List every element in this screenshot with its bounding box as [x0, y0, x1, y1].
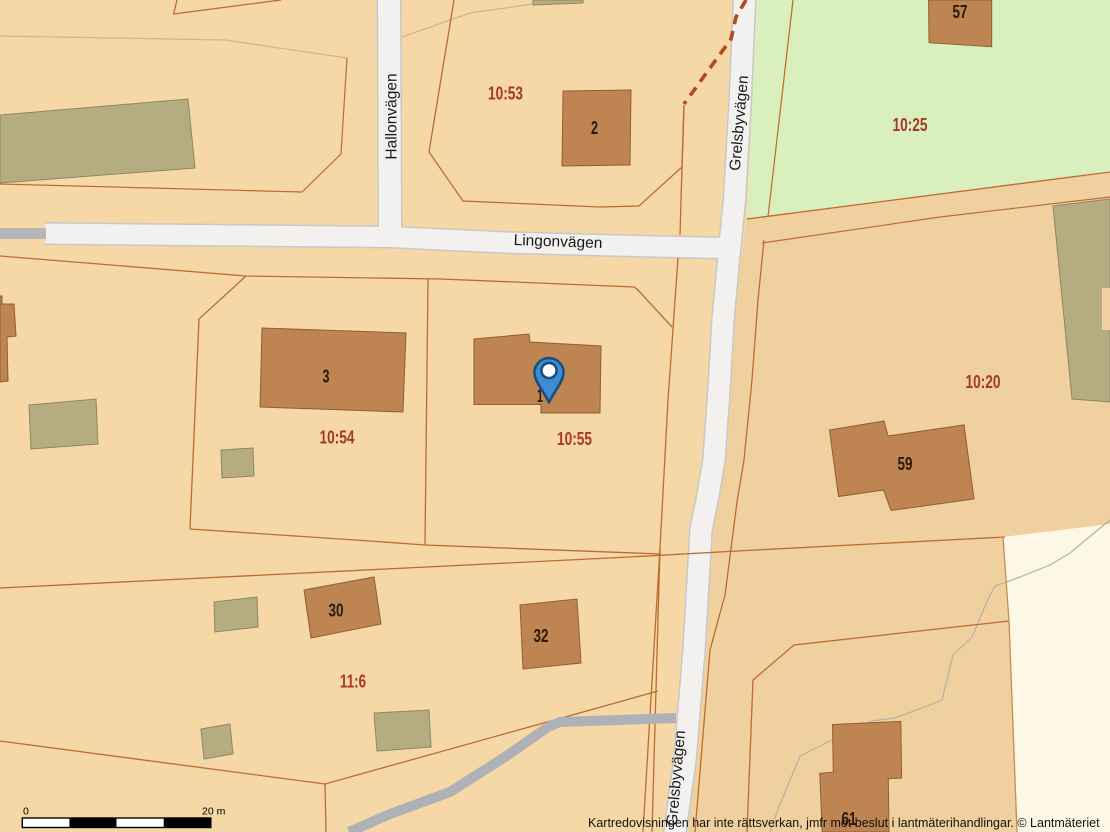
svg-text:2: 2 — [591, 118, 598, 138]
svg-text:10:54: 10:54 — [320, 428, 355, 448]
svg-text:10:25: 10:25 — [893, 115, 928, 135]
svg-text:32: 32 — [534, 626, 549, 646]
svg-text:10:55: 10:55 — [557, 429, 592, 449]
svg-text:10:20: 10:20 — [966, 372, 1001, 392]
svg-text:0: 0 — [23, 806, 29, 818]
svg-text:10:53: 10:53 — [488, 84, 523, 104]
svg-text:3: 3 — [323, 367, 330, 387]
svg-text:Hallonvägen: Hallonvägen — [384, 73, 401, 159]
svg-text:59: 59 — [898, 454, 913, 474]
svg-text:Kartredovisningen har inte rät: Kartredovisningen har inte rättsverkan, … — [588, 816, 1100, 830]
svg-text:20 m: 20 m — [202, 806, 226, 818]
svg-text:11:6: 11:6 — [340, 672, 366, 692]
svg-text:Lingonvägen: Lingonvägen — [513, 232, 602, 252]
svg-text:30: 30 — [329, 601, 344, 621]
svg-text:57: 57 — [953, 2, 968, 22]
